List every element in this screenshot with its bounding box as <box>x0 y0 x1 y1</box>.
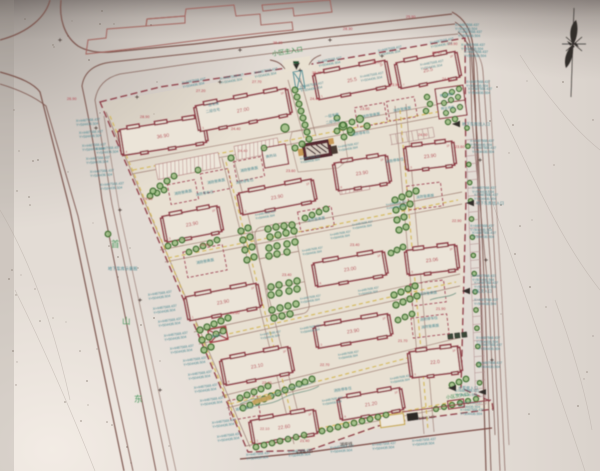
svg-text:地下车库出入口: 地下车库出入口 <box>476 200 504 206</box>
svg-text:24.60: 24.60 <box>143 197 153 201</box>
svg-text:Y=504436.504: Y=504436.504 <box>458 34 480 38</box>
svg-text:24.40: 24.40 <box>231 127 241 131</box>
svg-text:24.50: 24.50 <box>442 77 452 81</box>
svg-text:22.90: 22.90 <box>452 219 462 223</box>
svg-text:25.90: 25.90 <box>406 15 416 19</box>
svg-text:21.70: 21.70 <box>398 339 408 343</box>
svg-text:28.30: 28.30 <box>343 27 353 31</box>
svg-text:Y=504436.504: Y=504436.504 <box>474 302 496 306</box>
svg-text:22.70: 22.70 <box>320 363 330 367</box>
svg-text:22.10: 22.10 <box>260 427 270 431</box>
svg-text:22.40: 22.40 <box>262 381 272 385</box>
svg-text:Y=504436.504: Y=504436.504 <box>472 150 494 154</box>
svg-text:25.70: 25.70 <box>372 61 382 65</box>
svg-text:首: 首 <box>111 239 120 249</box>
svg-text:小区次入口: 小区次入口 <box>472 288 492 294</box>
svg-text:27.20: 27.20 <box>196 89 206 93</box>
svg-text:Y=504436.504: Y=504436.504 <box>478 347 500 351</box>
svg-text:东: 东 <box>134 394 143 404</box>
svg-text:1F: 1F <box>452 348 456 352</box>
svg-text:Y=504436.504: Y=504436.504 <box>464 54 486 58</box>
svg-text:Y=504436.504: Y=504436.504 <box>472 235 494 239</box>
svg-text:地下车库示意图: 地下车库示意图 <box>108 265 137 272</box>
svg-text:28.90: 28.90 <box>140 115 150 119</box>
svg-text:山: 山 <box>122 316 131 326</box>
svg-text:24.40: 24.40 <box>238 149 248 153</box>
svg-text:23.90: 23.90 <box>448 42 458 46</box>
svg-text:Y=504436.504: Y=504436.504 <box>460 412 482 416</box>
svg-text:27.70: 27.70 <box>252 80 262 84</box>
svg-text:Y=504436.504: Y=504436.504 <box>468 91 490 95</box>
svg-text:23.40: 23.40 <box>282 273 292 277</box>
svg-text:21.40: 21.40 <box>300 439 310 443</box>
svg-text:21.90: 21.90 <box>436 307 446 311</box>
svg-text:23.90: 23.90 <box>360 107 370 111</box>
svg-text:水泵房入口: 水泵房入口 <box>458 385 478 391</box>
svg-text:24.60: 24.60 <box>200 243 210 247</box>
svg-text:23.40: 23.40 <box>432 51 442 55</box>
svg-text:23.60: 23.60 <box>230 311 240 315</box>
svg-text:23.90: 23.90 <box>390 83 400 87</box>
svg-text:23.60: 23.60 <box>455 145 465 149</box>
svg-text:1F: 1F <box>449 247 453 251</box>
svg-text:Y=504436.504: Y=504436.504 <box>478 365 500 369</box>
svg-text:23.40: 23.40 <box>350 243 360 247</box>
svg-text:23.60: 23.60 <box>286 169 296 173</box>
svg-text:24.40: 24.40 <box>310 97 320 101</box>
svg-text:1F: 1F <box>446 143 450 147</box>
svg-text:36.70: 36.70 <box>312 71 322 75</box>
svg-text:36.30: 36.30 <box>273 41 283 45</box>
svg-text:22.0: 22.0 <box>430 359 441 366</box>
svg-text:26.90: 26.90 <box>67 97 77 101</box>
svg-text:地下车库出入口: 地下车库出入口 <box>462 121 490 127</box>
